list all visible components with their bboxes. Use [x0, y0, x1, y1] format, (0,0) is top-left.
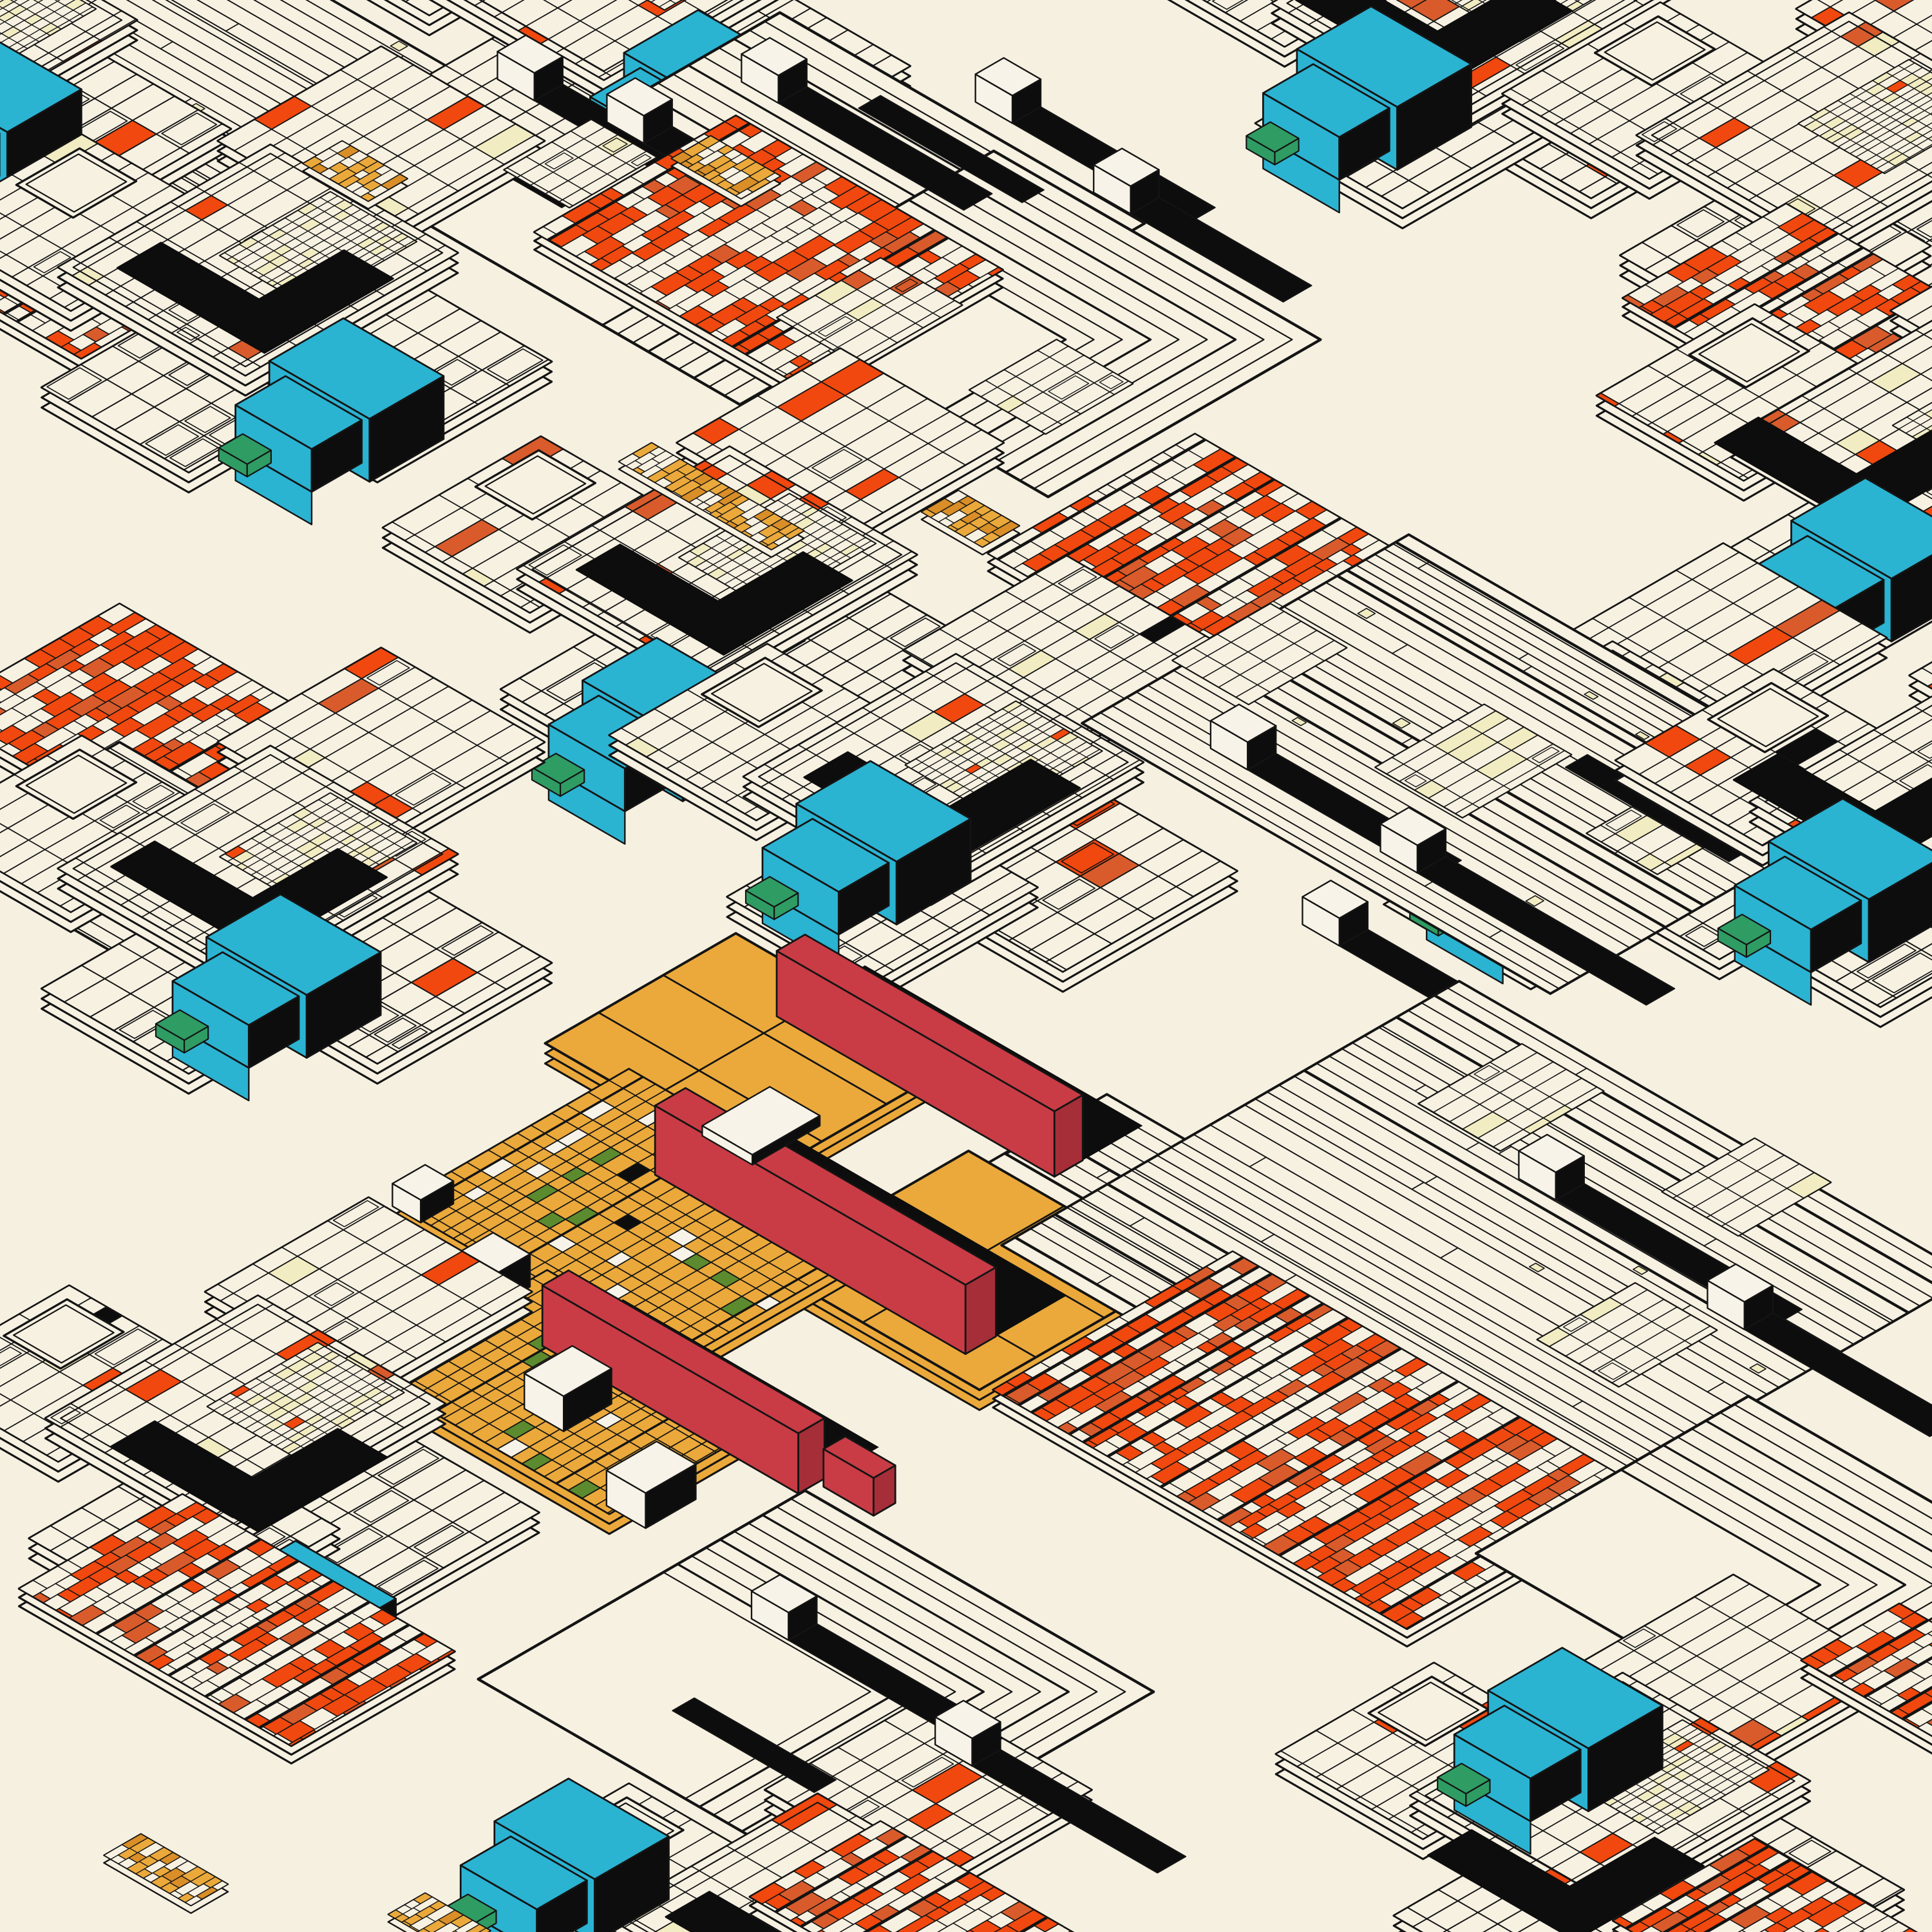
- generative-isometric-artwork: [0, 0, 1932, 1932]
- artwork-canvas: [0, 0, 1932, 1932]
